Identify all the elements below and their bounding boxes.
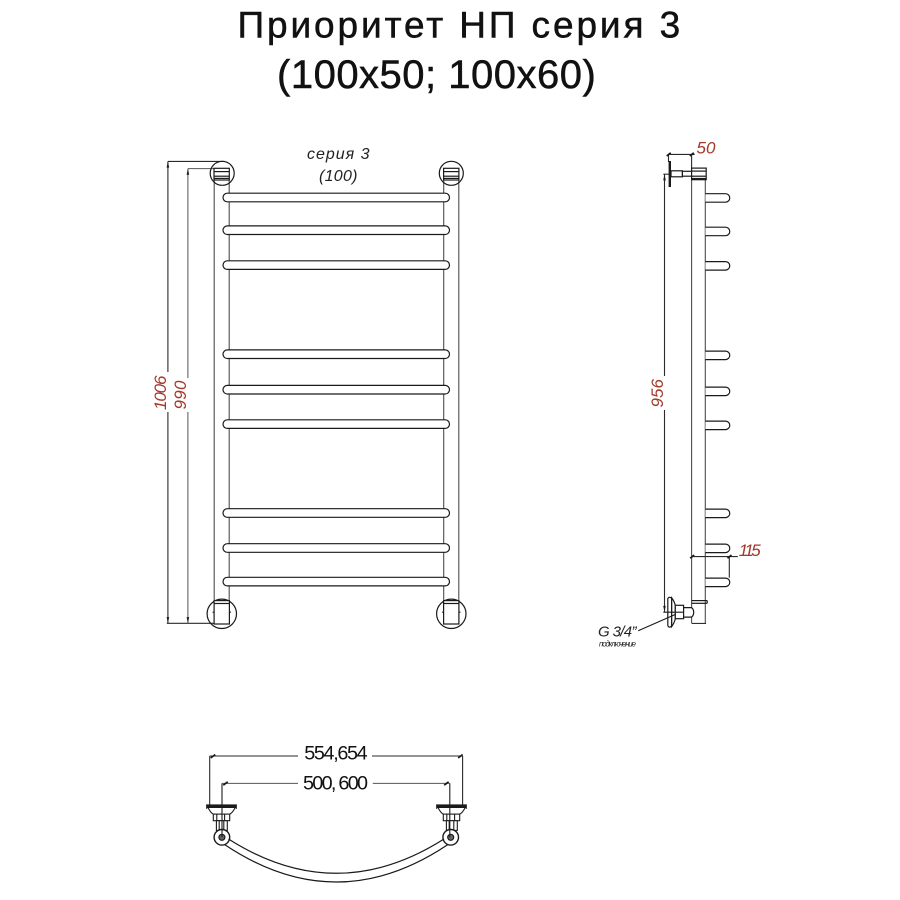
svg-text:50: 50 xyxy=(697,139,717,158)
svg-text:(100): (100) xyxy=(319,168,358,185)
svg-text:990: 990 xyxy=(171,380,190,410)
svg-text:1006: 1006 xyxy=(151,375,170,410)
svg-text:956: 956 xyxy=(648,378,667,407)
svg-text:Приоритет НП серия 3: Приоритет НП серия 3 xyxy=(238,5,684,46)
svg-text:500, 600: 500, 600 xyxy=(303,773,368,795)
svg-text:G 3/4”: G 3/4” xyxy=(598,624,638,641)
svg-text:115: 115 xyxy=(739,541,762,560)
svg-text:подключение: подключение xyxy=(599,640,637,649)
svg-text:554,654: 554,654 xyxy=(304,742,368,764)
svg-text:серия 3: серия 3 xyxy=(307,146,370,163)
svg-text:(100x50; 100x60): (100x50; 100x60) xyxy=(277,53,596,97)
